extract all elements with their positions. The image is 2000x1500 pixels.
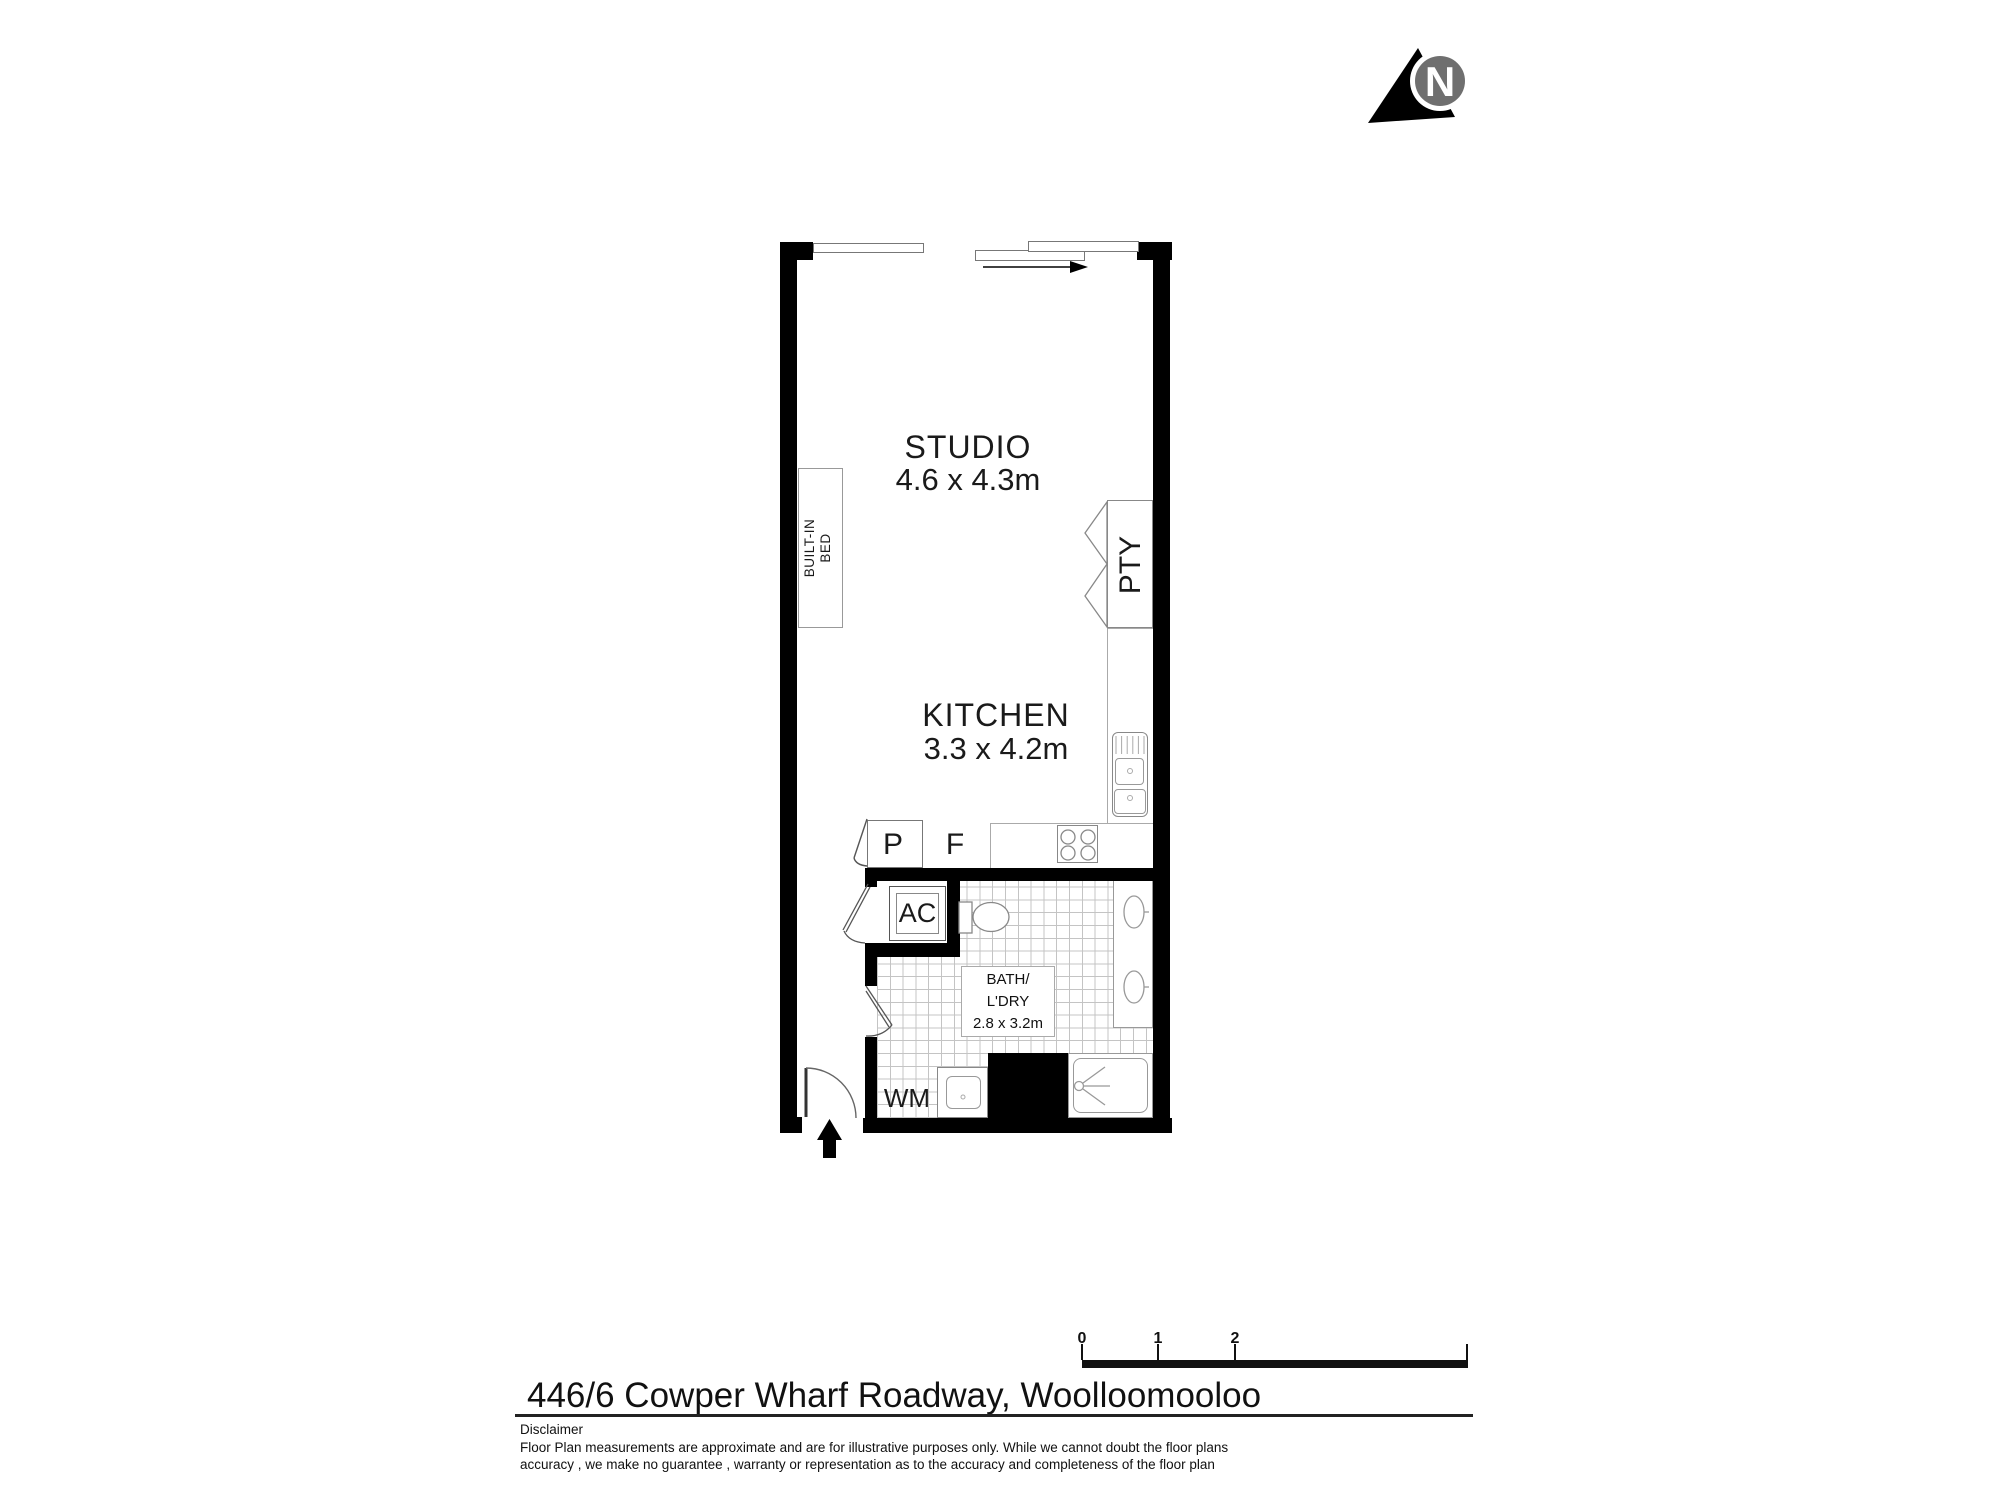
scale-label-2: 2: [1223, 1330, 1247, 1348]
window-slide-arrow: [983, 261, 1088, 273]
wall-bottom-main: [863, 1118, 1172, 1133]
studio-dims: 4.6 x 4.3m: [848, 462, 1088, 498]
washing-machine-label: WM: [876, 1083, 938, 1114]
ac-unit-inner: AC: [896, 893, 939, 934]
disclaimer-title: Disclaimer: [520, 1422, 583, 1437]
bath-label-box: BATH/ L'DRY 2.8 x 3.2m: [961, 966, 1055, 1037]
wall-corner-top-left: [780, 242, 813, 260]
address-title: 446/6 Cowper Wharf Roadway, Woolloomoolo…: [527, 1376, 1261, 1416]
window-left: [813, 243, 924, 253]
address-divider: [515, 1414, 1473, 1417]
kitchen-name: KITCHEN: [876, 697, 1116, 734]
wall-ac-bottom: [865, 943, 960, 957]
kitchen-dims: 3.3 x 4.2m: [876, 731, 1116, 767]
scale-label-0: 0: [1070, 1330, 1094, 1348]
cupboard-label: P: [873, 828, 913, 862]
north-symbol: N: [1368, 48, 1470, 123]
sink-bowl-top: [1115, 758, 1144, 785]
entry-door: [806, 1068, 856, 1118]
sink-bowl-bottom: [1114, 789, 1146, 814]
studio-name: STUDIO: [848, 429, 1088, 466]
laundry-tub-bowl: [946, 1076, 981, 1109]
built-in-bed-line2: BED: [818, 468, 834, 628]
ac-label: AC: [899, 898, 937, 929]
entry-arrow-icon: [817, 1119, 842, 1158]
bath-name-line2: L'DRY: [987, 991, 1030, 1013]
wall-stub-above-ac-door: [865, 878, 877, 887]
wall-stub-between-doors: [865, 955, 877, 986]
north-label: N: [1425, 58, 1455, 105]
shower-tray: [1073, 1058, 1148, 1113]
disclaimer-line1: Floor Plan measurements are approximate …: [520, 1440, 1228, 1455]
scale-tick-5: [1466, 1344, 1468, 1360]
pantry-label: PTY: [1115, 505, 1147, 625]
bath-black-block: [988, 1053, 1068, 1118]
fridge-label: F: [935, 828, 975, 862]
built-in-bed-line1: BUILT-IN: [802, 468, 818, 628]
floor-plan-page: AC BATH/ L'DRY 2.8 x 3.2m: [0, 0, 2000, 1500]
cooktop: [1057, 825, 1098, 863]
ac-door: [843, 884, 870, 943]
wall-left: [780, 242, 797, 1133]
scale-label-1: 1: [1146, 1330, 1170, 1348]
pantry-bifold-door: [1085, 502, 1107, 627]
wall-right: [1153, 242, 1170, 1133]
wall-bottom-left: [780, 1117, 802, 1133]
disclaimer-line2: accuracy , we make no guarantee , warran…: [520, 1457, 1215, 1472]
built-in-bed-label: BUILT-IN BED: [802, 468, 836, 628]
bath-name-line1: BATH/: [986, 969, 1029, 991]
bath-dims: 2.8 x 3.2m: [973, 1013, 1043, 1035]
wall-kitchen-bath-divider: [865, 868, 1155, 881]
window-slider-upper: [1028, 241, 1139, 252]
cupboard-door: [854, 819, 867, 866]
scale-bar-line: [1082, 1360, 1468, 1368]
vanity: [1113, 878, 1153, 1028]
